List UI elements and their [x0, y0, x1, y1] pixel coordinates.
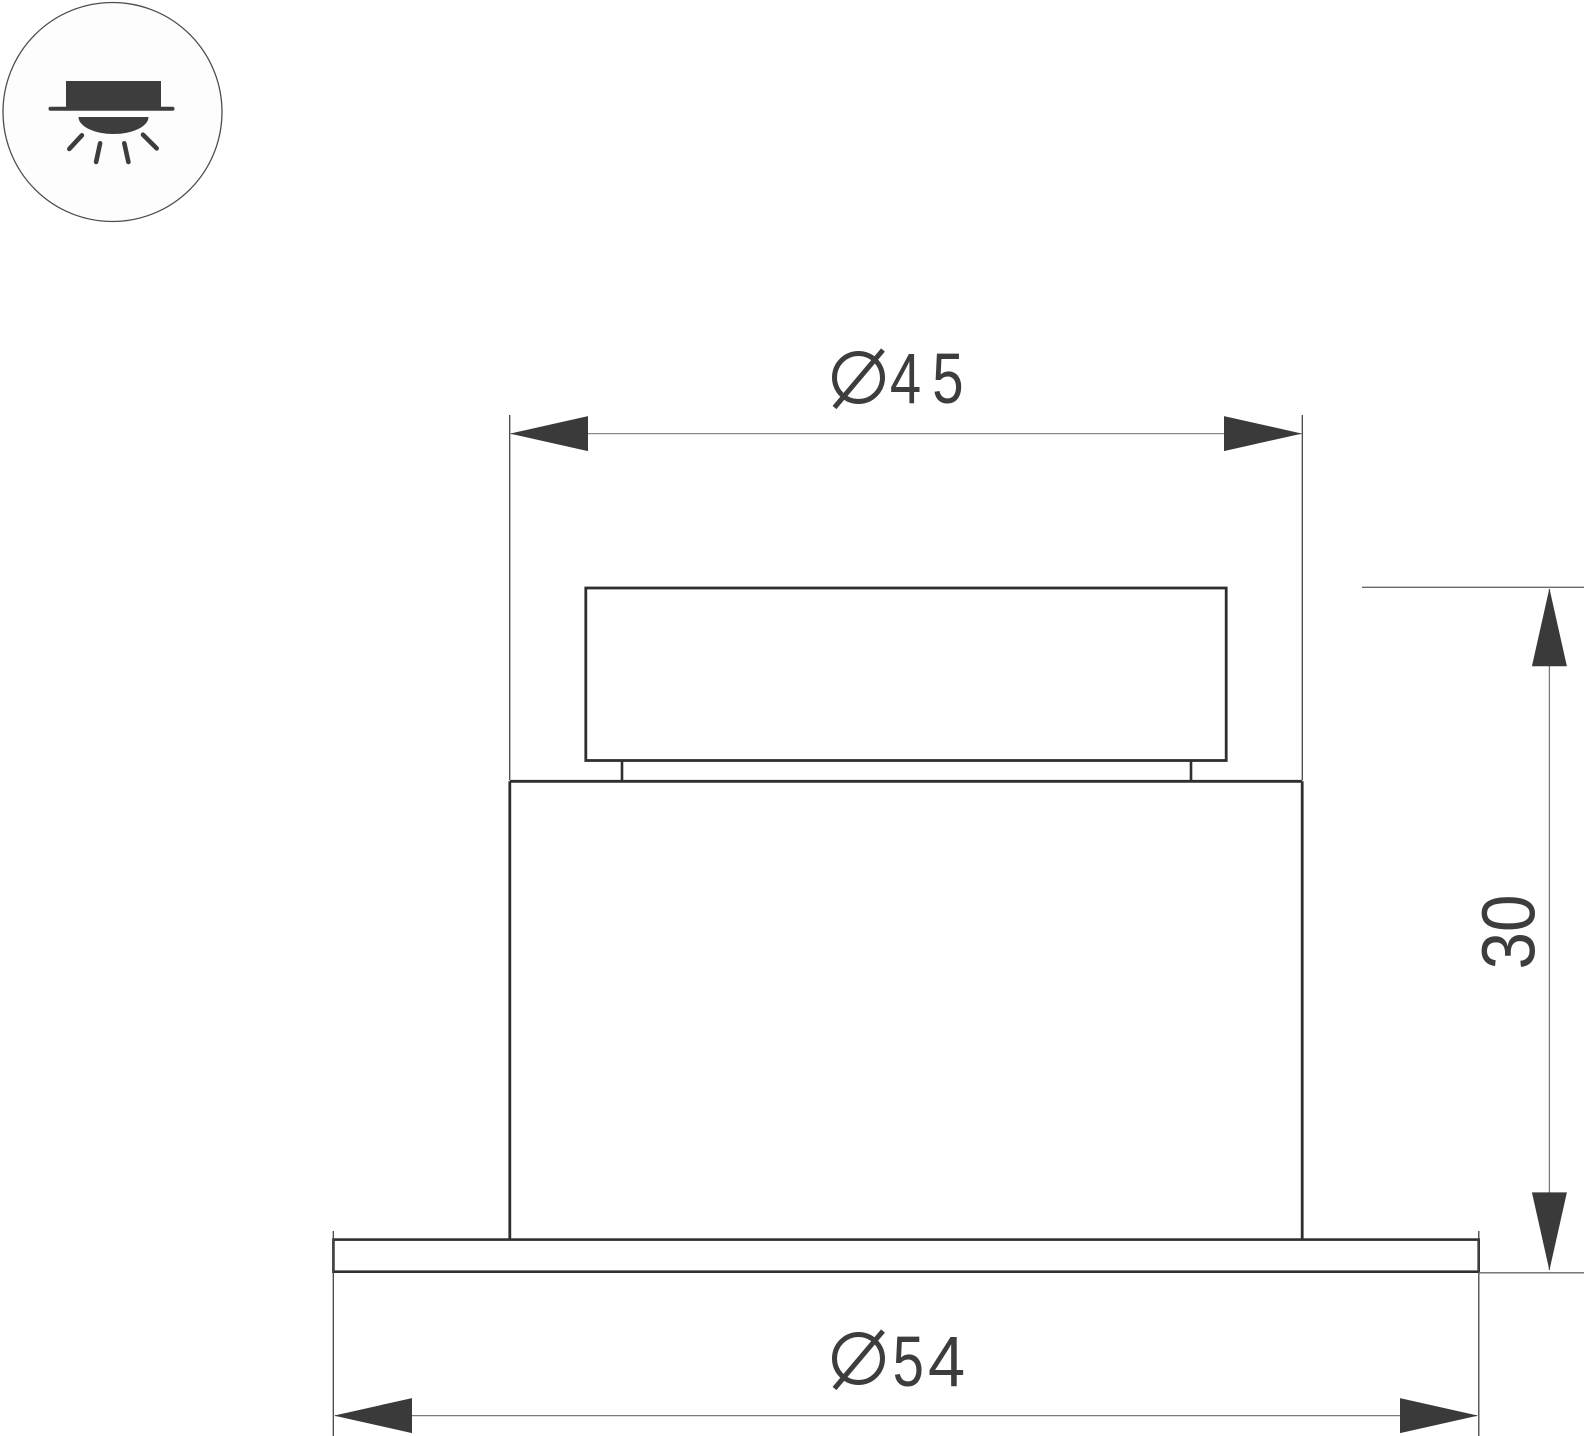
svg-text:4: 4 — [928, 1322, 965, 1402]
svg-text:5: 5 — [932, 339, 963, 419]
svg-text:4: 4 — [890, 339, 921, 419]
svg-text:30: 30 — [1467, 895, 1551, 970]
svg-text:5: 5 — [893, 1322, 924, 1402]
